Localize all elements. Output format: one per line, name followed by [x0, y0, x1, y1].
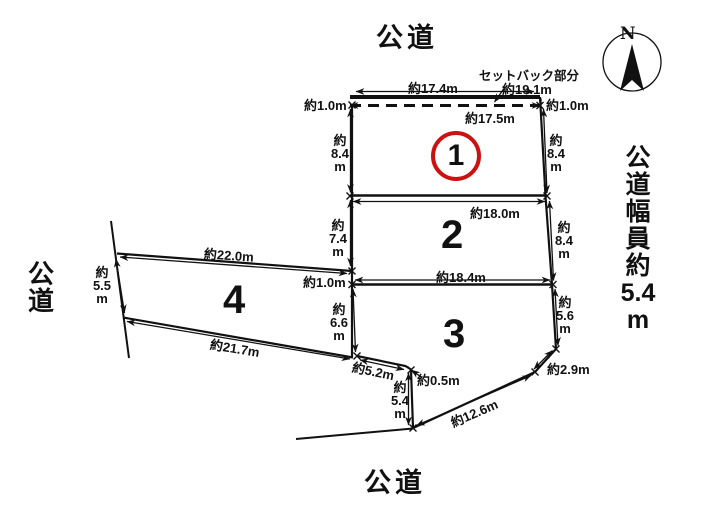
dim-8-4-right-plot2: 約 8.4 m	[549, 221, 579, 260]
plot1-number: 1	[448, 139, 465, 173]
dim-1-0-mid: 約1.0m	[303, 272, 346, 291]
dim-18-0: 約18.0m	[470, 203, 520, 222]
plot3-number: 3	[443, 314, 465, 354]
dim-5-5-left-plot4: 約 5.5 m	[87, 266, 117, 305]
dim-5-4-bottom: 約 5.4 m	[385, 381, 415, 420]
plot4-number: 4	[223, 280, 245, 320]
dim-6-6-left-plot3: 約 6.6 m	[324, 303, 354, 342]
land-plot-diagram: 公道 公道 公 道 公 道 幅 員 約 5.4 m N セットバック部分 約19…	[0, 0, 705, 525]
dim-22-0: 約22.0m	[203, 243, 254, 265]
compass-north-label: N	[620, 24, 636, 44]
dim-2-9: 約2.9m	[547, 359, 590, 378]
dim-1-0-right-top: 約1.0m	[546, 95, 589, 114]
plot1-number-circle: 1	[431, 131, 481, 181]
plot2-number: 2	[441, 215, 463, 255]
dim-1-0-left-top: 約1.0m	[304, 95, 347, 114]
dim-0-5: 約0.5m	[417, 370, 460, 389]
road-label-top: 公道	[376, 24, 438, 52]
dim-17-5: 約17.5m	[465, 108, 515, 127]
dim-8-4-right-plot1: 約 8.4 m	[541, 134, 571, 173]
dim-8-4-left-plot1: 約 8.4 m	[325, 134, 355, 173]
dim-17-4: 約17.4m	[408, 78, 458, 97]
road-width-label-right: 公 道 幅 員 約 5.4 m	[616, 145, 660, 334]
bottom-road-line	[296, 429, 413, 440]
dim-5-6-right-plot3: 約 5.6 m	[550, 296, 580, 335]
road-label-left: 公 道	[28, 261, 54, 315]
dim-18-4: 約18.4m	[436, 267, 486, 286]
plot-lines-svg	[0, 0, 705, 525]
road-label-bottom: 公道	[364, 469, 426, 497]
dim-7-4-left-plot2: 約 7.4 m	[323, 219, 353, 258]
dim-19-1: 約19.1m	[502, 79, 552, 98]
